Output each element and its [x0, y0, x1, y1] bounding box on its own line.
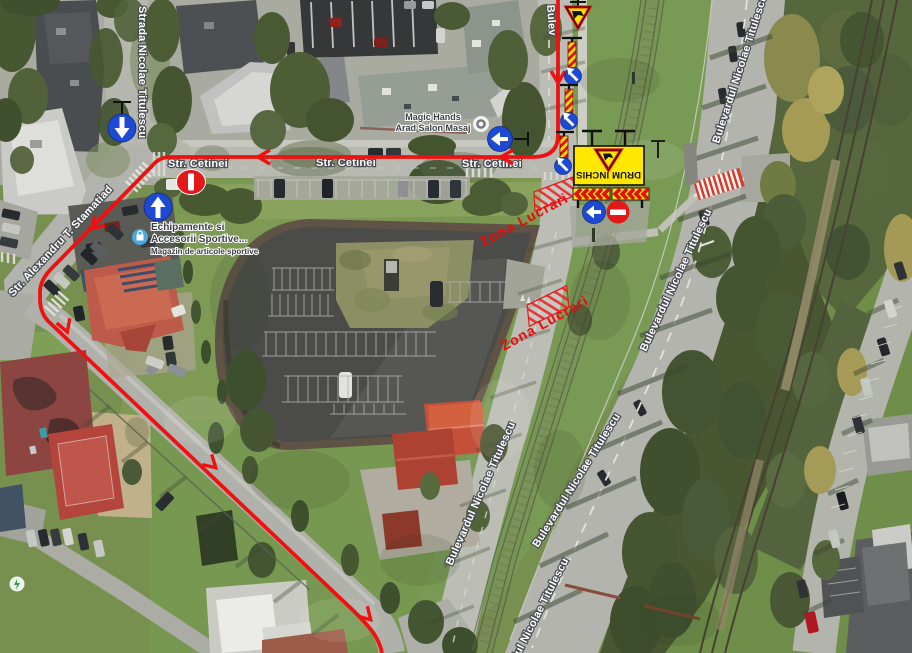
svg-text:DRUM INCHIS: DRUM INCHIS [575, 169, 641, 180]
svg-text:Magic Hands: Magic Hands [405, 112, 461, 122]
svg-text:Strada Nicolae Titulescu: Strada Nicolae Titulescu [136, 6, 148, 138]
svg-text:Magazin de articole sportive: Magazin de articole sportive [151, 247, 259, 256]
svg-text:Accesorii Sportive...: Accesorii Sportive... [151, 234, 247, 245]
svg-text:Arad Salon Masaj: Arad Salon Masaj [395, 123, 470, 133]
svg-text:Bulev: Bulev [544, 4, 558, 36]
svg-text:Echipamente si: Echipamente si [151, 222, 225, 233]
svg-text:Str. Cetinei: Str. Cetinei [168, 158, 228, 170]
